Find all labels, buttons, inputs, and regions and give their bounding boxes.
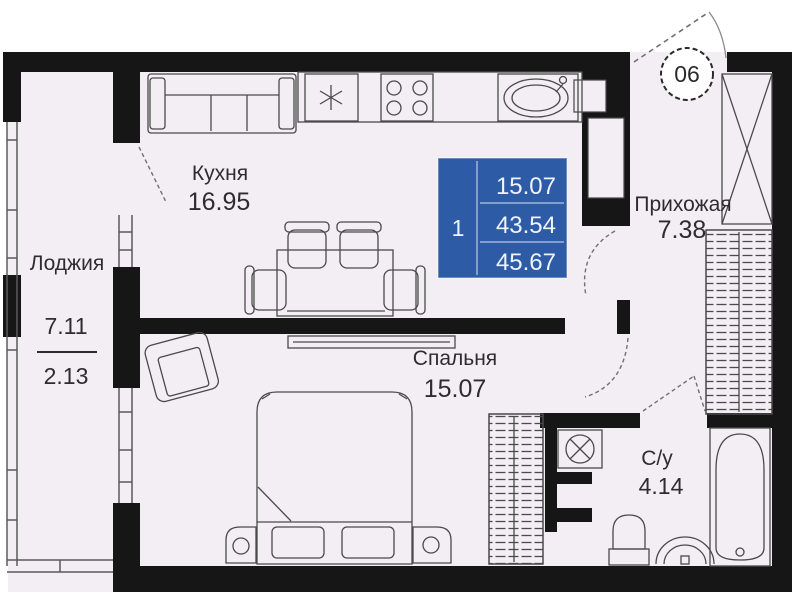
- info-value-1: 15.07: [496, 173, 556, 200]
- wall-bathroom-top-right: [707, 413, 772, 428]
- loggia-area-total: 7.11: [44, 313, 87, 339]
- unit-number: 06: [674, 61, 700, 87]
- unit-number-badge: 06: [661, 48, 713, 100]
- room-area-bedroom: 15.07: [424, 375, 487, 403]
- info-value-2: 43.54: [496, 212, 556, 239]
- wall-bathroom-left: [545, 428, 557, 532]
- wall-bathroom-top-left: [540, 413, 640, 428]
- wall-loggia-right-top: [113, 52, 140, 143]
- info-room-count: 1: [452, 215, 465, 241]
- room-label-bedroom: Спальня: [413, 347, 497, 370]
- room-area-kitchen: 16.95: [188, 188, 251, 216]
- floor-plan-svg: 06 1 15.07 43.54 45.67 Кухня 16.95 Спаль…: [0, 0, 792, 600]
- room-label-hallway: Прихожая: [634, 193, 731, 216]
- room-area-hallway: 7.38: [658, 216, 707, 244]
- wall-loggia-right-bottom: [113, 503, 140, 573]
- room-area-bathroom: 4.14: [639, 473, 684, 499]
- coat-rack: [706, 230, 772, 414]
- wall-bedroom-door-jamb: [617, 300, 630, 334]
- wall-loggia-left-pier-top: [3, 52, 21, 122]
- wall-kitchen-bedroom: [133, 318, 565, 334]
- wall-right: [772, 52, 792, 592]
- wall-loggia-left-pier-mid: [3, 275, 21, 337]
- wall-bathroom-shelf-2: [557, 508, 592, 522]
- duct-niche-closed: [588, 118, 624, 198]
- room-label-loggia: Лоджия: [30, 252, 104, 275]
- info-box: 1 15.07 43.54 45.67: [438, 158, 567, 278]
- wall-top: [8, 52, 630, 72]
- bedroom-wardrobe: [489, 414, 543, 564]
- wall-bathroom-shelf-1: [557, 472, 592, 484]
- wall-bottom: [113, 566, 792, 592]
- info-value-3: 45.67: [496, 249, 556, 276]
- loggia-area-reduced: 2.13: [44, 363, 89, 389]
- duct-niche-open: [574, 80, 606, 112]
- floor-plan: 06 1 15.07 43.54 45.67 Кухня 16.95 Спаль…: [0, 0, 792, 600]
- room-label-bathroom: С/у: [641, 447, 673, 470]
- room-label-kitchen: Кухня: [192, 162, 248, 185]
